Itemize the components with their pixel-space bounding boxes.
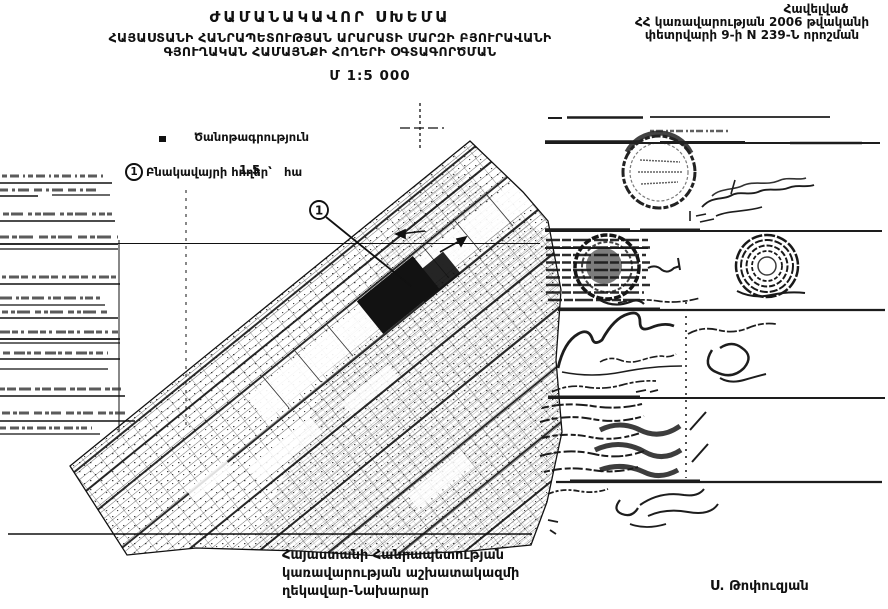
page-title: ԺԱՄԱՆԱԿԱՎՈՐ ՍԽԵՄԱ xyxy=(0,8,660,26)
map-scale: Մ 1:5 000 xyxy=(300,68,440,84)
signature-scribble-bottom xyxy=(548,489,718,534)
map-marker-label: 1 xyxy=(315,204,323,218)
subtitle-line-1: ՀԱՅԱՍՏԱՆԻ ՀԱՆՐԱՊԵՏՈՒԹՅԱՆ ԱՐԱՐԱՏԻ ՄԱՐԶԻ Բ… xyxy=(0,30,660,45)
land-use-map-scan: 1 xyxy=(0,0,888,609)
signature-scribble-1 xyxy=(690,178,814,222)
annex-line-1: Հավելված xyxy=(760,2,872,16)
stamp-seal-3 xyxy=(736,235,805,297)
footer-office-line-3: ղեկավար-Նախարար xyxy=(282,583,532,601)
stamps-signatures-panel xyxy=(540,117,885,534)
stamp-seal-2 xyxy=(546,235,680,305)
subtitle-line-2: ԳՅՈՒՂԱԿԱՆ ՀԱՄԱՅՆՔԻ ՀՈՂԵՐԻ ՕԳՏԱԳՈՐԾՄԱՆ xyxy=(0,44,660,59)
scanned-decree-scheme-page: 1 xyxy=(0,0,888,609)
annex-line-3: փետրվարի 9-ի N 239-Ն որոշման xyxy=(616,28,888,42)
legend-note-label: Ծանոթագրություն xyxy=(194,130,309,144)
legend-marker-circled-1-icon: 1 xyxy=(125,163,143,181)
handwriting-scribbles-middle xyxy=(552,298,776,392)
note-bullet-icon xyxy=(159,136,166,142)
annex-line-2: ՀՀ կառավարության 2006 թվականի xyxy=(616,15,888,29)
left-margin-scan-lines xyxy=(0,176,135,434)
footer-office-line-1: Հայաստանի Հանրապետության xyxy=(282,547,532,565)
signatory-name: Ս. Թոփուզյան xyxy=(710,579,809,594)
stamp-seal-1 xyxy=(623,133,695,208)
legend-item-value: 1.5 xyxy=(239,163,260,177)
handwriting-scribbles-lower xyxy=(540,404,708,476)
legend-item-unit: հա xyxy=(284,165,302,179)
footer-office-block: Հայաստանի Հանրապետության կառավարության ա… xyxy=(282,547,532,601)
footer-office-line-2: կառավարության աշխատակազմի xyxy=(282,565,532,583)
